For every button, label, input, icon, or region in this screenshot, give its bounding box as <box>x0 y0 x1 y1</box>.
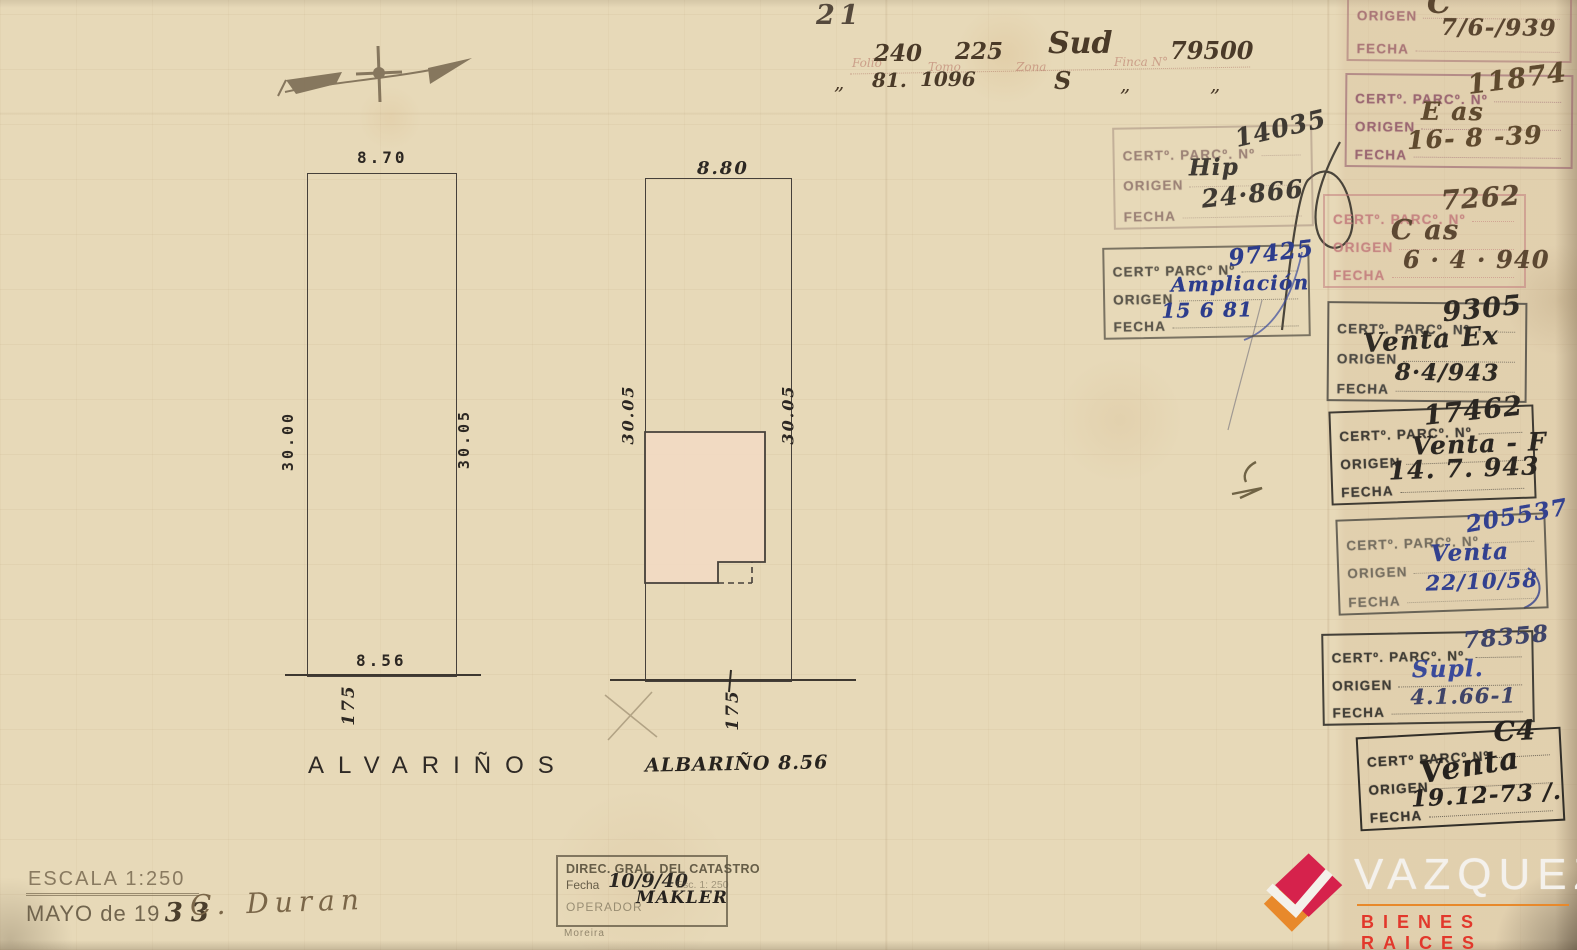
month-printed: MAYO de 19 <box>26 901 160 926</box>
dim-right-east: 30.05 <box>779 384 798 444</box>
cert-parc-stamp-7: CERTº. PARCº. Nº. 78358 ORIGEN Supl. FEC… <box>1321 630 1535 726</box>
cert-parc-stamp-6: CERTº. PARCº. Nº 205537 ORIGEN Venta FEC… <box>1335 512 1548 615</box>
street-note-albarino: ALBARIÑO 8.56 <box>645 751 829 776</box>
right-street-line <box>610 679 856 681</box>
ink-squiggle <box>1232 462 1262 498</box>
form-ditto-mark: „ <box>834 70 844 94</box>
dim-left-bottom: 8.56 <box>356 651 407 670</box>
form-ditto-zona: S <box>1054 66 1071 95</box>
cert-parc-stamp-8: CERTº PARCº Nº C4 ORIGEN Venta FECHA 19.… <box>1356 727 1566 832</box>
cert-parc-stamp-3: CERTº. PARCº. Nº 7262 ORIGEN C as FECHA … <box>1323 194 1526 288</box>
cert-parc-stamp-5: CERTº. PARCº. Nº 17462 ORIGEN Venta - F … <box>1328 404 1536 505</box>
cert-parc-stamp-center-1: CERTº. PARCº. Nº 14035 ORIGEN Hip FECHA … <box>1112 124 1314 229</box>
north-arrow-icon <box>278 46 472 102</box>
cert-parc-stamp-1: CERTº. PARCº. Nº ORIGEN C Orl FECHA 7/6-… <box>1347 0 1573 63</box>
dim-right-frontage: 175 <box>723 689 743 731</box>
dim-left-frontage: 175 <box>339 684 359 726</box>
logo-diamond-icon <box>1262 848 1346 940</box>
logo-name: VAZQUEZ <box>1354 850 1577 900</box>
logo-underline <box>1357 904 1569 906</box>
left-parcel-outline <box>307 173 457 677</box>
form-ditto-finca-2: „ <box>1210 72 1220 96</box>
catastro-operador-label: OPERADOR <box>566 900 643 914</box>
catastro-operador-value: MAKLER <box>636 888 728 908</box>
x-mark <box>605 692 657 740</box>
pencil-note: Moreira <box>564 928 605 939</box>
vazquez-logo: VAZQUEZ BIENES RAICES <box>1262 848 1567 940</box>
cert-parc-stamp-4: CERTº. PARCº. Nº 9305 ORIGEN Venta Ex FE… <box>1327 301 1528 403</box>
dim-left-top: 8.70 <box>357 148 408 167</box>
page-number: 21 <box>816 0 864 31</box>
form-value-finca: 79500 <box>1170 36 1254 65</box>
form-value-folio: 240 <box>874 40 922 67</box>
dim-left-west: 30.00 <box>279 411 297 471</box>
form-ditto-folio: 81. <box>872 68 907 92</box>
left-street-line <box>285 674 481 676</box>
form-value-zona: Sud <box>1048 26 1112 61</box>
dim-right-top: 8.80 <box>697 158 749 179</box>
logo-tagline: BIENES RAICES <box>1361 912 1567 950</box>
scanned-cadastral-document: 21 Folio Tomo Zona Finca N° 240 225 Sud … <box>0 0 1577 950</box>
form-ditto-finca-1: „ <box>1120 72 1130 96</box>
form-ditto-tomo: 1096 <box>920 67 976 91</box>
dim-left-east: 30.05 <box>455 409 473 469</box>
cert-parc-stamp-2: CERTº. PARCº. Nº 11874 ORIGEN E as FECHA… <box>1345 73 1574 169</box>
dim-right-west: 30.05 <box>619 384 638 444</box>
right-parcel-outline <box>645 178 792 682</box>
cert-parc-stamp-center-2: CERTº PARCº Nº 97425 ORIGEN Ampliación F… <box>1102 244 1311 340</box>
catastro-stamp: DIREC. GRAL. DEL CATASTRO Fecha 10/9/40 … <box>556 855 728 927</box>
scale-block: ESCALA 1:250 MAYO de 19 33 <box>26 868 217 928</box>
catastro-fecha-label: Fecha <box>566 878 599 892</box>
escala-label: ESCALA 1:250 <box>26 868 199 896</box>
street-name-alvarinos: ALVARIÑOS <box>308 752 568 780</box>
surveyor-signature: C. Duran <box>189 883 365 922</box>
form-value-tomo: 225 <box>955 38 1003 65</box>
